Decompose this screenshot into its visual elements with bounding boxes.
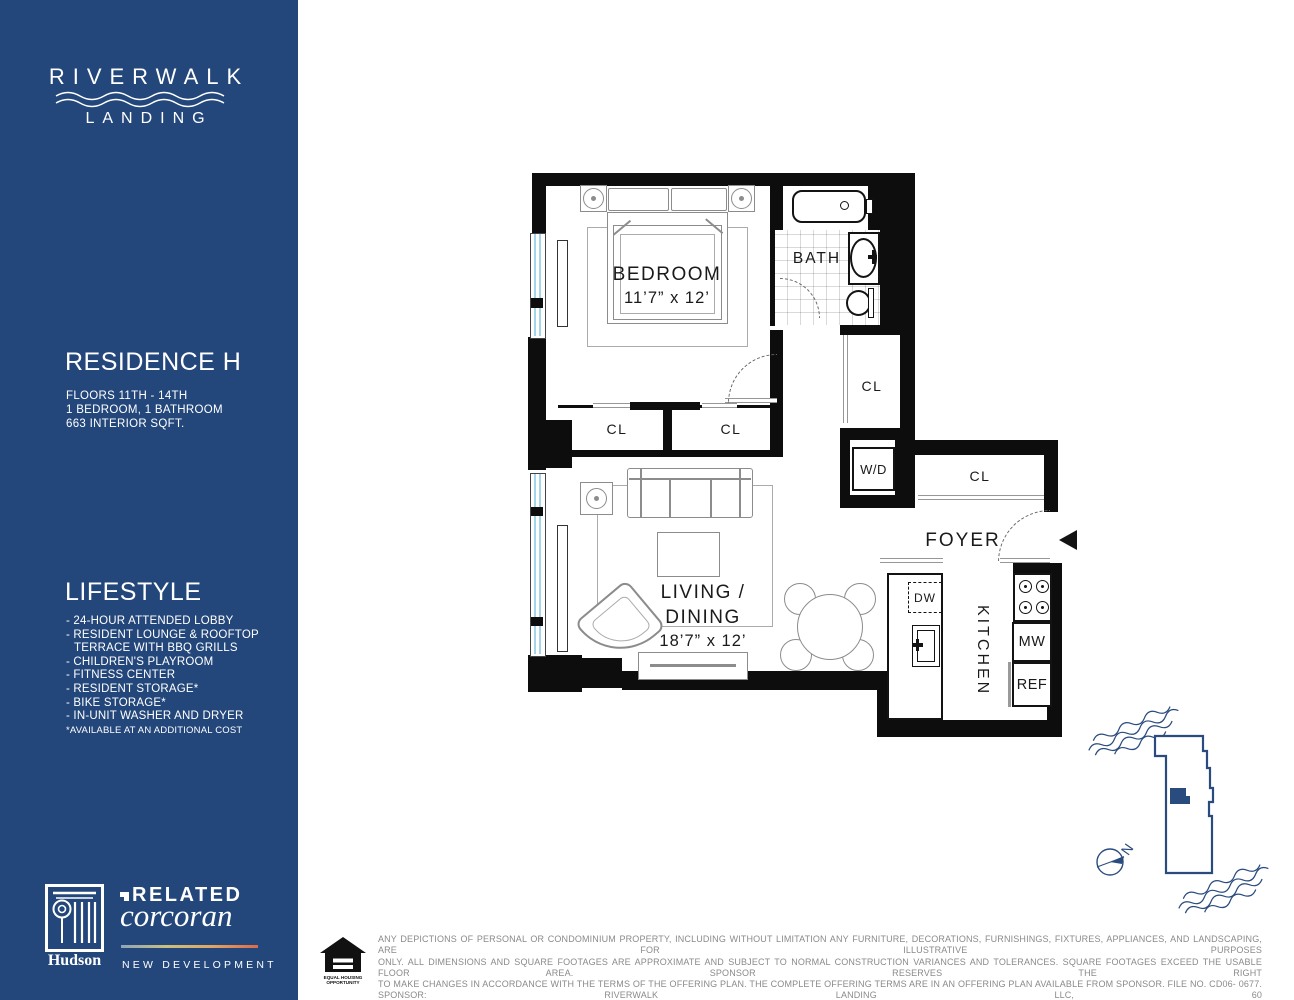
- refrigerator-edge: [1008, 662, 1011, 707]
- sofa-arm-line: [739, 469, 741, 517]
- microwave-label: MW: [1019, 634, 1046, 650]
- window-glass: [539, 234, 541, 336]
- microwave: MW: [1012, 622, 1052, 662]
- living-name-line1: LIVING /: [630, 582, 776, 604]
- radiator: [557, 525, 568, 652]
- dishwasher-label: DW: [914, 591, 936, 605]
- window: [530, 473, 546, 657]
- disclaimer-line: ANY DEPICTIONS OF PERSONAL OR CONDOMINIU…: [378, 934, 1262, 957]
- washer-dryer: W/D: [852, 447, 895, 491]
- closet-door-track: [918, 495, 1044, 500]
- wave-divider-icon: [54, 90, 244, 110]
- toilet-tank: [868, 288, 874, 318]
- sofa-arm-line: [640, 469, 642, 517]
- wall: [1044, 440, 1058, 512]
- lifestyle-item: - FITNESS CENTER: [66, 669, 280, 683]
- window-mullion: [531, 507, 543, 516]
- window-glass: [534, 474, 536, 654]
- new-development-label: NEW DEVELOPMENT: [122, 959, 277, 971]
- lifestyle-footnote: *AVAILABLE AT AN ADDITIONAL COST: [66, 725, 242, 736]
- bed-pillow: [608, 188, 669, 211]
- brand-subname: LANDING: [0, 110, 298, 128]
- radiator: [557, 240, 568, 327]
- closet-label: CL: [597, 421, 637, 437]
- window: [530, 233, 546, 339]
- stove-burner-dot: [1024, 585, 1027, 588]
- bedroom-dims: 11’7” x 12’: [586, 289, 748, 308]
- living-dining-label: LIVING / DINING 18’7” x 12’: [630, 582, 776, 651]
- lifestyle-list: - 24-HOUR ATTENDED LOBBY - RESIDENT LOUN…: [66, 615, 280, 724]
- lifestyle-item: - CHILDREN'S PLAYROOM: [66, 656, 280, 670]
- lifestyle-item: - IN-UNIT WASHER AND DRYER: [66, 710, 280, 724]
- stove-burner-dot: [1041, 606, 1044, 609]
- key-plan: N: [1078, 696, 1294, 936]
- wall: [560, 658, 622, 688]
- bath-label: BATH: [787, 250, 847, 268]
- flyer-page: RIVERWALK LANDING RESIDENCE H FLOORS 11T…: [0, 0, 1294, 1000]
- wall: [840, 325, 915, 335]
- coffee-table: [657, 532, 720, 577]
- dining-table: [797, 594, 863, 660]
- corcoran-logo-label: corcoran: [120, 898, 233, 934]
- building-footprint: [1155, 736, 1213, 873]
- lifestyle-title: LIFESTYLE: [65, 578, 202, 607]
- residence-title: RESIDENCE H: [65, 348, 241, 377]
- refrigerator-label: REF: [1017, 677, 1048, 693]
- wall: [880, 230, 900, 287]
- sofa: [627, 468, 753, 518]
- wall: [663, 408, 672, 452]
- lifestyle-item: - RESIDENT LOUNGE & ROOFTOP TERRACE WITH…: [66, 629, 280, 656]
- equal-housing-logo-icon: [319, 936, 367, 976]
- sofa-cushion-divider: [669, 479, 671, 517]
- kitchen-sink-faucet: [916, 639, 919, 651]
- window-mullion: [531, 617, 543, 626]
- sofa-cushion-divider: [710, 479, 712, 517]
- bathtub-drain: [840, 201, 849, 210]
- sidebar: RIVERWALK LANDING RESIDENCE H FLOORS 11T…: [0, 0, 298, 1000]
- residence-details: FLOORS 11TH - 14TH 1 BEDROOM, 1 BATHROOM…: [66, 389, 223, 431]
- entry-door-swing: [998, 510, 1050, 562]
- side-table-lamp-dot: [594, 496, 599, 501]
- nightstand-lamp-dot: [739, 196, 744, 201]
- corcoran-gradient-rule: [121, 945, 258, 948]
- disclaimer-text: ANY DEPICTIONS OF PERSONAL OR CONDOMINIU…: [378, 934, 1262, 1000]
- bathtub-faucet: [866, 199, 873, 214]
- window-glass: [539, 474, 541, 654]
- lifestyle-item: - BIKE STORAGE*: [66, 697, 280, 711]
- window-mullion: [531, 298, 543, 308]
- bedroom-door-swing: [728, 354, 777, 403]
- compass-icon: N: [1097, 841, 1137, 875]
- closet-door-track: [702, 403, 737, 408]
- stove-burner-dot: [1024, 606, 1027, 609]
- residence-bed-bath: 1 BEDROOM, 1 BATHROOM: [66, 403, 223, 417]
- wall: [532, 173, 546, 233]
- brand-name: RIVERWALK: [0, 64, 298, 90]
- wall: [1013, 563, 1062, 573]
- hudson-logo-icon: [45, 884, 104, 952]
- bedroom-label: BEDROOM 11’7” x 12’: [586, 264, 748, 308]
- bed-pillow: [671, 188, 727, 211]
- residence-sqft: 663 INTERIOR SQFT.: [66, 417, 223, 431]
- wall: [900, 178, 915, 440]
- refrigerator: REF: [1012, 662, 1052, 707]
- wall: [900, 440, 1057, 455]
- tv-console-bar: [650, 664, 736, 667]
- nightstand-lamp-dot: [591, 196, 596, 201]
- bathtub: [792, 190, 866, 223]
- kitchen-label: KITCHEN: [965, 605, 991, 697]
- kitchen-counter-edge: [880, 558, 943, 563]
- hudson-logo-label: Hudson: [31, 952, 118, 970]
- closet-door-track: [593, 403, 630, 408]
- wall: [570, 450, 780, 457]
- disclaimer-line: TO MAKE CHANGES IN ACCORDANCE WITH THE T…: [378, 979, 1262, 1000]
- residence-floors: FLOORS 11TH - 14TH: [66, 389, 223, 403]
- window-glass: [534, 234, 536, 336]
- disclaimer-line: ONLY. ALL DIMENSIONS AND SQUARE FOOTAGES…: [378, 957, 1262, 980]
- lifestyle-item: - RESIDENT STORAGE*: [66, 683, 280, 697]
- bedroom-name: BEDROOM: [586, 264, 748, 286]
- floor-plan: DW MW REF W/D BEDROOM 11’7” x 12’ BATH: [528, 168, 1088, 746]
- wall: [528, 337, 546, 470]
- sofa-back-line: [629, 478, 751, 480]
- stove-burner-dot: [1041, 585, 1044, 588]
- bath-sink-faucet: [872, 250, 875, 264]
- living-name-line2: DINING: [630, 607, 776, 629]
- wall: [546, 420, 572, 468]
- equal-housing-caption: EQUAL HOUSING OPPORTUNITY: [318, 975, 368, 985]
- closet-label: CL: [711, 421, 751, 437]
- dishwasher: DW: [908, 582, 942, 613]
- closet-label: CL: [960, 468, 1000, 484]
- closet-door-track: [843, 335, 848, 423]
- lifestyle-item: - 24-HOUR ATTENDED LOBBY: [66, 615, 280, 629]
- closet-label: CL: [852, 378, 892, 394]
- foyer-label: FOYER: [923, 530, 1003, 552]
- entry-arrow-icon: [1059, 530, 1077, 550]
- living-dims: 18’7” x 12’: [630, 632, 776, 651]
- washer-dryer-label: W/D: [860, 462, 887, 477]
